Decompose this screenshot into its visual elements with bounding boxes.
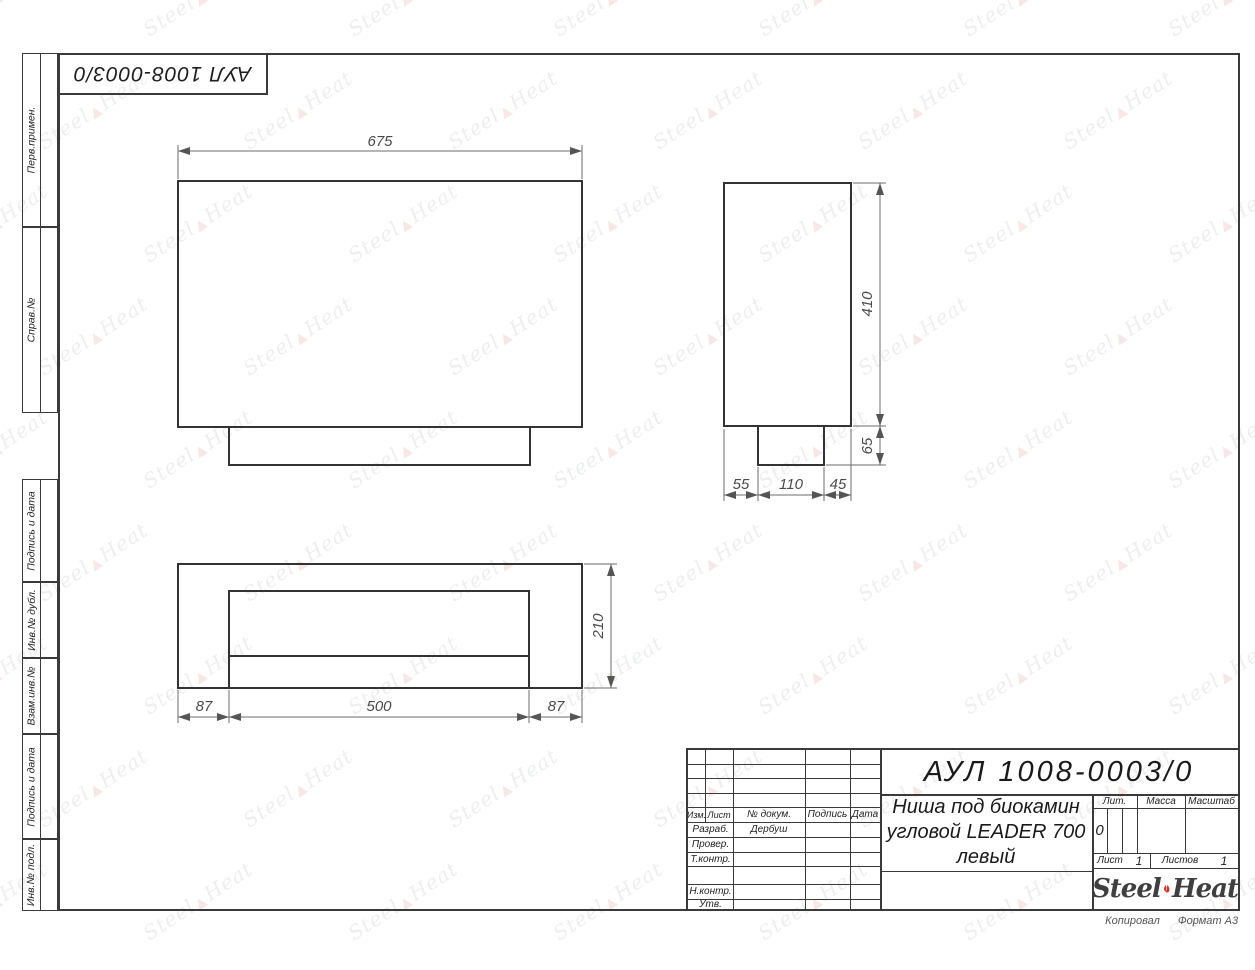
watermark-text: Steel▲Heat	[139, 0, 258, 41]
format-note: Формат А3	[1173, 915, 1243, 927]
tb-role-utv: Утв.	[688, 899, 733, 909]
tb-line	[1122, 808, 1123, 853]
side-cell-label-box: Инв.№ дубл.	[23, 583, 41, 657]
side-cell-blank	[41, 659, 57, 733]
side-cell-label-box: Перв.примен.	[23, 54, 41, 226]
tb-line	[880, 871, 1092, 872]
side-cell-podpis-data-1: Подпись и дата	[22, 479, 58, 582]
side-cell-label: Подпись и дата	[26, 491, 38, 570]
tb-line	[850, 750, 851, 909]
company-logo: Steel Heat	[1092, 868, 1238, 909]
side-cell-podpis-data-2: Подпись и дата	[22, 734, 58, 839]
tb-listov-value: 1	[1210, 853, 1238, 868]
side-cell-label-box: Взам.инв.№	[23, 659, 41, 733]
side-cell-vzam-inv: Взам.инв.№	[22, 658, 58, 734]
tb-razrab-name: Дербуш	[733, 822, 805, 837]
watermark-text: Steel▲Heat	[959, 0, 1078, 41]
flame-icon	[1163, 875, 1170, 902]
tb-header-doc: № докум.	[733, 807, 805, 822]
side-cell-label: Взам.инв.№	[26, 666, 38, 725]
tb-doc-number: АУЛ 1008-0003/0	[880, 750, 1238, 794]
side-cell-label: Справ.№	[26, 298, 38, 343]
tb-list-value: 1	[1128, 853, 1150, 868]
side-cell-blank	[41, 735, 57, 838]
tb-header-date: Дата	[850, 807, 880, 822]
tb-list-label: Лист	[1092, 853, 1128, 868]
side-cell-label-box: Инв.№ подл.	[23, 840, 41, 910]
watermark-text: Steel▲Heat	[754, 0, 873, 41]
side-cell-label: Инв.№ дубл.	[26, 589, 38, 651]
tb-role-prover: Провер.	[688, 837, 733, 852]
side-cell-blank	[41, 583, 57, 657]
watermark-text: Steel▲Heat	[0, 0, 52, 41]
tb-part-name-line3: левый	[957, 845, 1016, 870]
tb-header-sign: Подпись	[805, 807, 850, 822]
tb-massa-label: Масса	[1137, 794, 1185, 808]
side-cell-blank	[41, 840, 57, 910]
tb-lit-label: Лит.	[1092, 794, 1137, 808]
logo-steel-text: Steel	[1092, 874, 1161, 904]
side-cell-label-box: Справ.№	[23, 228, 41, 412]
tb-line	[805, 750, 806, 909]
corner-doc-number: АУЛ 1008-0003/0	[73, 61, 251, 85]
side-cell-blank	[41, 54, 57, 226]
drawing-sheet: { "colors": {"flame_red": "#e02b20", "li…	[0, 0, 1255, 970]
side-cell-label: Подпись и дата	[26, 747, 38, 826]
side-cell-label: Перв.примен.	[26, 107, 38, 174]
side-cell-inv-dubl: Инв.№ дубл.	[22, 582, 58, 658]
tb-header-izm: Изм.	[688, 807, 705, 822]
tb-listov-label: Листов	[1150, 853, 1210, 868]
side-cell-blank	[41, 228, 57, 412]
side-cell-sprav-no: Справ.№	[22, 227, 58, 413]
tb-role-nkontr: Н.контр.	[688, 884, 733, 899]
tb-lit-value: 0	[1092, 808, 1107, 853]
side-cell-label-box: Подпись и дата	[23, 735, 41, 838]
tb-line	[688, 866, 880, 867]
kopiroval-note: Копировал	[1095, 915, 1170, 927]
side-cell-label-box: Подпись и дата	[23, 480, 41, 581]
logo-heat-text: Heat	[1172, 874, 1238, 904]
tb-role-razrab: Разраб.	[688, 822, 733, 837]
tb-masshtab-label: Масштаб	[1185, 794, 1238, 808]
tb-role-tkontr: Т.контр.	[688, 852, 733, 866]
tb-line	[688, 778, 880, 779]
watermark-text: Steel▲Heat	[1164, 0, 1255, 41]
side-cell-inv-podl: Инв.№ подл.	[22, 839, 58, 911]
tb-line	[1092, 808, 1238, 809]
side-cell-blank	[41, 480, 57, 581]
tb-part-name-line1: Ниша под биокамин	[892, 795, 1080, 820]
tb-part-name-line2: угловой LEADER 700	[887, 820, 1086, 845]
side-cell-label: Инв.№ подл.	[26, 844, 38, 906]
watermark-text: Steel▲Heat	[549, 0, 668, 41]
tb-line	[688, 793, 880, 794]
tb-line	[1107, 808, 1108, 853]
tb-header-list: Лист	[705, 807, 733, 822]
title-block: Изм. Лист № докум. Подпись Дата Разраб. …	[686, 748, 1240, 911]
tb-part-name: Ниша под биокамин угловой LEADER 700 лев…	[880, 794, 1092, 871]
side-cell-perv-primen: Перв.примен.	[22, 53, 58, 227]
watermark-text: Steel▲Heat	[344, 0, 463, 41]
tb-line	[688, 764, 880, 765]
corner-doc-number-box: АУЛ 1008-0003/0	[58, 53, 268, 95]
